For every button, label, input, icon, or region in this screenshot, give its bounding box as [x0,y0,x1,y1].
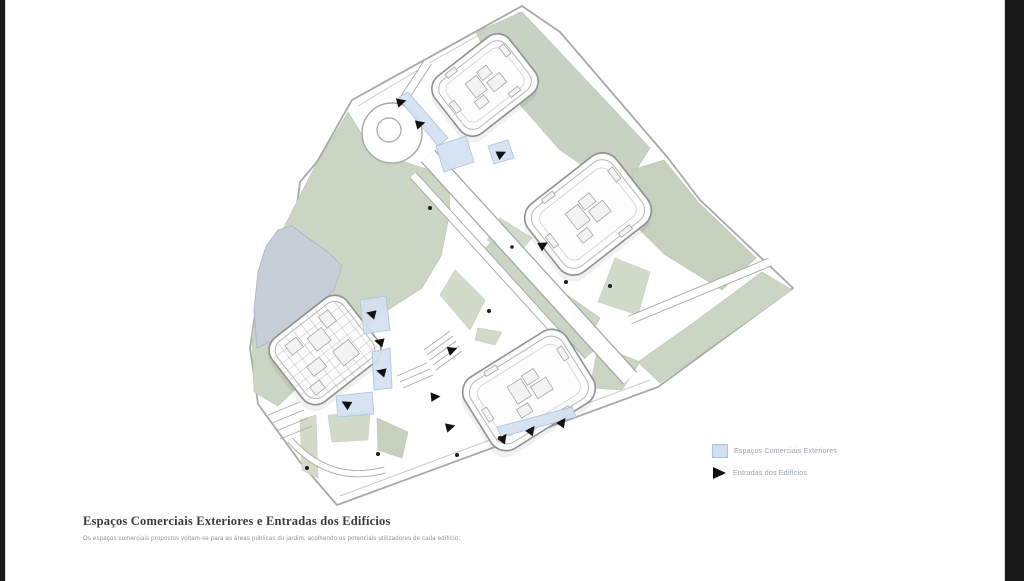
legend-item-commercial: Espaços Comerciais Exteriores [712,444,837,458]
tree-marker [305,466,309,470]
legend-label-entrances: Entradas dos Edifícios [733,470,807,477]
tree-marker [498,436,502,440]
page-subtitle: Os espaços comerciais propostos voltam-s… [83,536,683,542]
caption-block: Espaços Comerciais Exteriores e Entradas… [83,514,683,542]
entrance-swatch-icon [712,466,727,480]
green-area [300,415,318,478]
page-title: Espaços Comerciais Exteriores e Entradas… [83,514,683,529]
site-plan-drawing [0,0,1024,581]
tree-marker [455,453,459,457]
legend: Espaços Comerciais Exteriores Entradas d… [712,444,837,480]
tree-marker [608,284,612,288]
legend-item-entrances: Entradas dos Edifícios [712,466,837,480]
tree-marker [487,309,491,313]
commercial-space-swatch-icon [712,444,728,458]
green-area [328,412,370,442]
tree-marker [428,206,432,210]
tree-marker [510,245,514,249]
tree-marker [564,280,568,284]
tree-marker [376,452,380,456]
commercial-space-area [336,392,374,417]
commercial-space-area [372,348,392,390]
legend-label-commercial: Espaços Comerciais Exteriores [734,448,837,455]
